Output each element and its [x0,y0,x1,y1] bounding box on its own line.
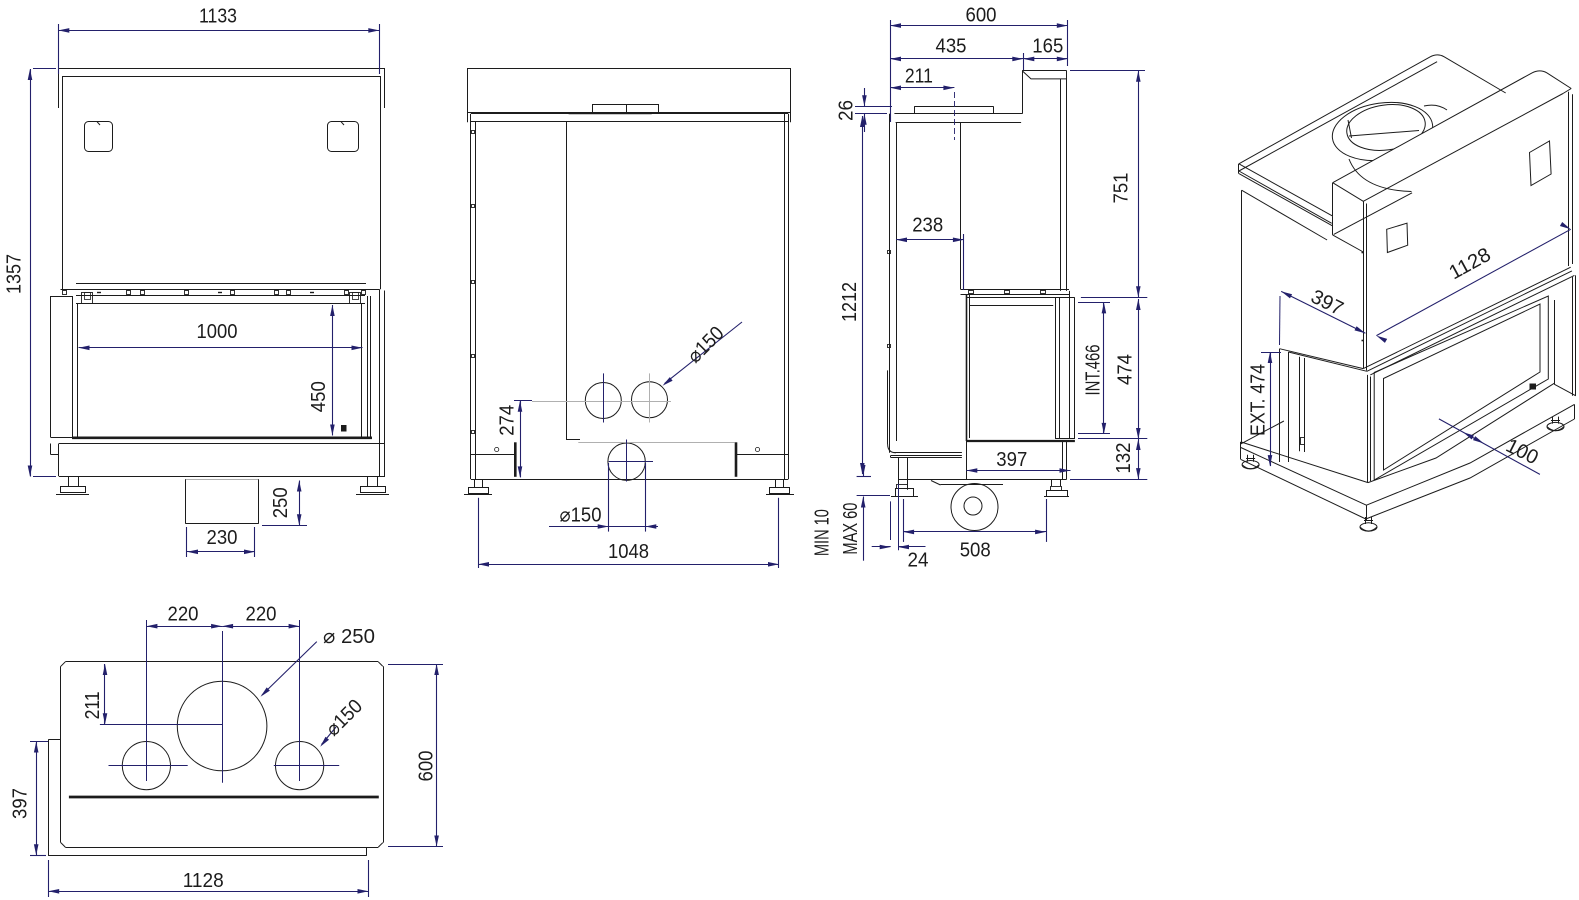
svg-text:EXT. 474: EXT. 474 [1248,364,1270,436]
svg-text:MAX 60: MAX 60 [840,503,862,555]
svg-text:1133: 1133 [199,6,237,28]
svg-text:397: 397 [996,449,1027,471]
svg-text:230: 230 [207,527,238,549]
svg-text:450: 450 [308,381,330,412]
svg-text:220: 220 [246,604,277,626]
svg-text:132: 132 [1113,443,1135,474]
svg-text:⌀ 250: ⌀ 250 [323,626,375,648]
svg-text:211: 211 [82,691,104,719]
svg-text:1048: 1048 [608,541,649,563]
svg-text:435: 435 [936,36,967,58]
svg-text:220: 220 [168,604,199,626]
svg-text:250: 250 [270,487,292,518]
svg-text:26: 26 [836,100,858,121]
svg-text:238: 238 [912,215,943,237]
svg-text:600: 600 [966,5,997,27]
svg-text:165: 165 [1032,36,1063,58]
svg-text:INT.466: INT.466 [1083,345,1105,396]
svg-text:474: 474 [1115,354,1137,385]
svg-text:1128: 1128 [183,870,224,892]
svg-text:⌀150: ⌀150 [560,504,602,526]
svg-text:751: 751 [1111,173,1133,204]
svg-text:508: 508 [960,540,991,562]
svg-text:274: 274 [497,405,519,436]
svg-text:397: 397 [10,788,32,819]
svg-text:1000: 1000 [197,321,238,343]
svg-text:24: 24 [908,550,929,572]
svg-text:211: 211 [905,66,933,88]
svg-text:600: 600 [416,751,438,782]
svg-text:1212: 1212 [839,282,861,322]
svg-text:1357: 1357 [4,254,26,294]
svg-text:MIN 10: MIN 10 [811,509,833,556]
